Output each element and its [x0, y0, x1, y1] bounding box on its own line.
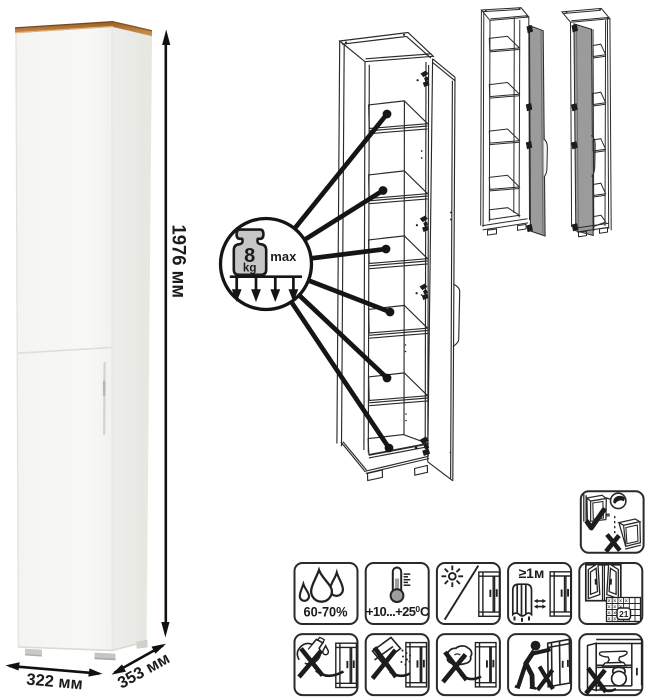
- svg-text:max: max: [270, 249, 297, 264]
- svg-text:1976 мм: 1976 мм: [168, 225, 190, 299]
- svg-text:21: 21: [619, 609, 629, 619]
- svg-text:kg: kg: [243, 262, 257, 275]
- svg-text:≥1м: ≥1м: [519, 565, 545, 581]
- svg-text:+10...+250C: +10...+250C: [366, 604, 430, 619]
- svg-text:60-70%: 60-70%: [304, 604, 348, 620]
